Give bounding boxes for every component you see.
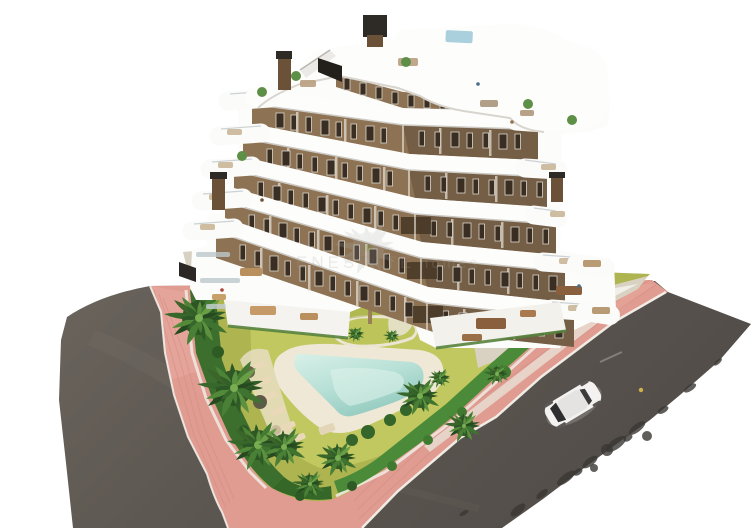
svg-text:ENESTATE: ENESTATE [296,253,415,272]
svg-text:homes: homes [420,255,480,272]
